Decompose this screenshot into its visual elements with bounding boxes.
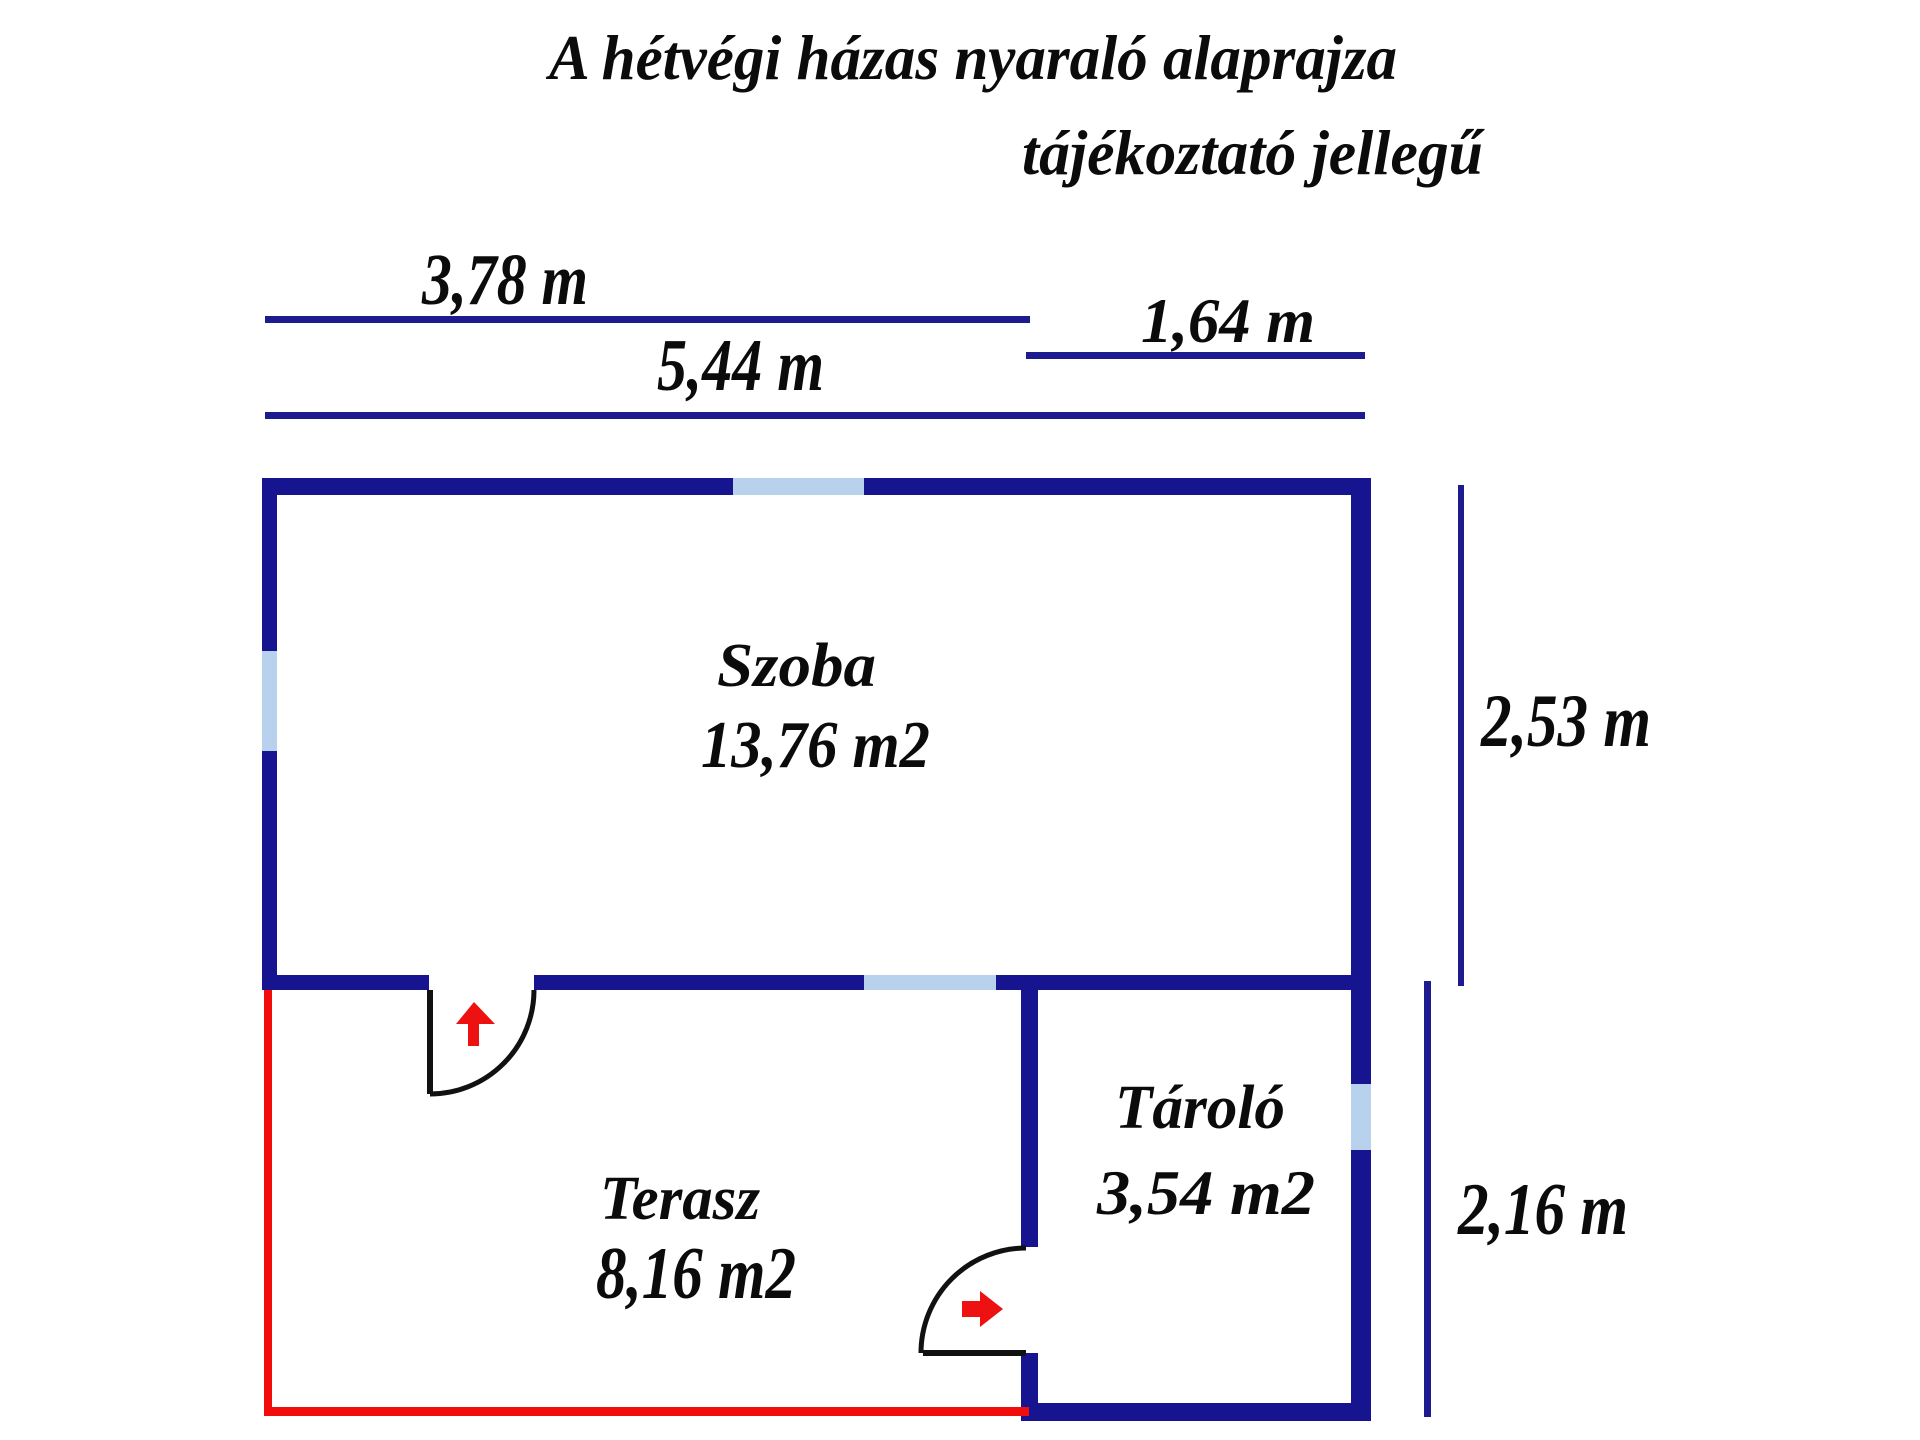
svg-text:2,53 m: 2,53 m — [1480, 680, 1651, 763]
svg-text:3,54 m2: 3,54 m2 — [1096, 1158, 1315, 1228]
svg-text:A hétvégi házas nyaraló alapra: A hétvégi házas nyaraló alaprajza — [545, 22, 1397, 93]
svg-text:8,16 m2: 8,16 m2 — [596, 1233, 796, 1315]
svg-text:2,16 m: 2,16 m — [1457, 1169, 1628, 1251]
svg-text:Terasz: Terasz — [600, 1165, 760, 1233]
svg-text:tájékoztató jellegű: tájékoztató jellegű — [1022, 117, 1485, 188]
svg-text:5,44 m: 5,44 m — [657, 325, 824, 407]
svg-text:3,78 m: 3,78 m — [421, 239, 588, 320]
svg-text:Tároló: Tároló — [1115, 1074, 1285, 1142]
svg-text:Szoba: Szoba — [717, 632, 876, 700]
svg-text:1,64 m: 1,64 m — [1141, 285, 1315, 356]
svg-text:13,76 m2: 13,76 m2 — [701, 708, 930, 782]
